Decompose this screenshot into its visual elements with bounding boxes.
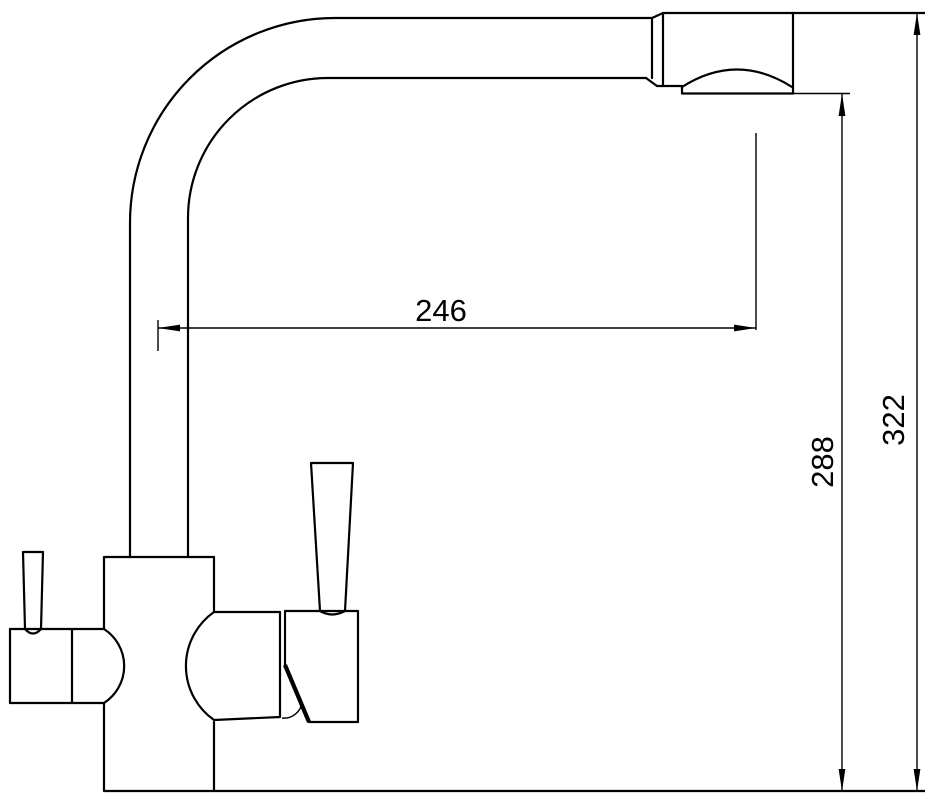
spout-outer-profile	[130, 18, 652, 557]
valve-knob	[186, 612, 280, 720]
faucet-technical-drawing: 246 288 322	[0, 0, 931, 808]
aerator-dome	[682, 70, 792, 88]
dim-246-arrow-right	[734, 325, 756, 332]
dim-322-label: 322	[876, 394, 911, 446]
dim-322-arrow-top	[914, 13, 921, 35]
left-handle-block	[10, 629, 104, 703]
dimension-overall-height: 322	[793, 13, 925, 791]
faucet-body	[104, 557, 214, 791]
spout-ferrule	[646, 13, 663, 86]
dim-322-arrow-bottom	[914, 769, 921, 791]
dimension-outlet-height: 288	[788, 94, 850, 792]
dimension-spout-reach: 246	[158, 133, 756, 351]
mixer-handle-pivot-arc	[282, 702, 302, 718]
dim-246-label: 246	[415, 293, 467, 328]
aerator-outlet	[682, 87, 793, 94]
dim-246-arrow-left	[158, 325, 180, 332]
dim-288-label: 288	[805, 436, 840, 488]
dim-288-arrow-bottom	[839, 769, 846, 791]
mixer-handle-lever	[311, 463, 353, 615]
left-handle-stem	[23, 552, 43, 634]
spout-head	[663, 13, 793, 94]
faucet-outline	[10, 13, 925, 791]
dim-288-arrow-top	[839, 94, 846, 117]
drawing-sheet: 246 288 322	[0, 0, 931, 808]
mixer-handle-base	[285, 611, 358, 722]
